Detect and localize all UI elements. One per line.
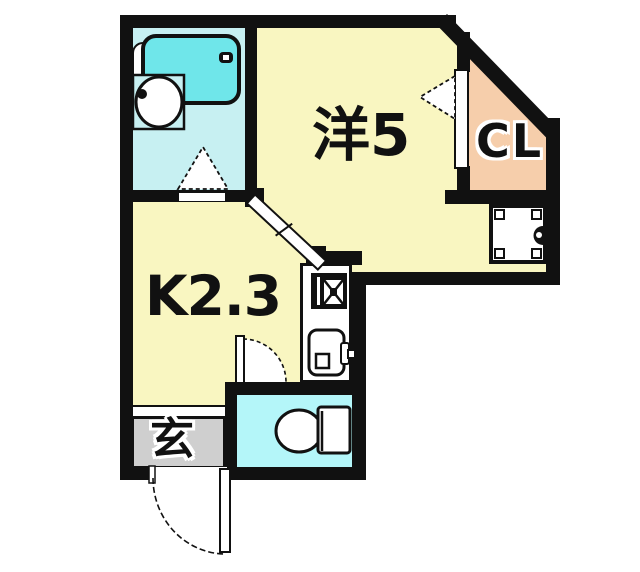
washing-machine-pan-icon <box>491 206 545 262</box>
closet-door-swing <box>420 70 468 168</box>
closet-label: CL <box>476 118 543 164</box>
stove-icon <box>311 273 347 309</box>
entrance-label: 玄 <box>150 418 194 462</box>
kitchen-sliding-door <box>244 192 329 273</box>
kitchen-label: K2.3 <box>145 269 281 324</box>
toilet-icon <box>276 407 350 453</box>
floor-plan: 洋5 K2.3 CL 玄 <box>0 0 640 572</box>
washbasin-icon <box>133 75 184 129</box>
western-room-label: 洋5 <box>312 106 410 164</box>
fixtures-layer <box>0 0 640 572</box>
bathroom-door-swing <box>178 147 228 189</box>
entrance-door-swing <box>149 466 230 554</box>
kitchen-sink-icon <box>309 330 355 375</box>
kitchen-door-swing <box>236 336 286 383</box>
